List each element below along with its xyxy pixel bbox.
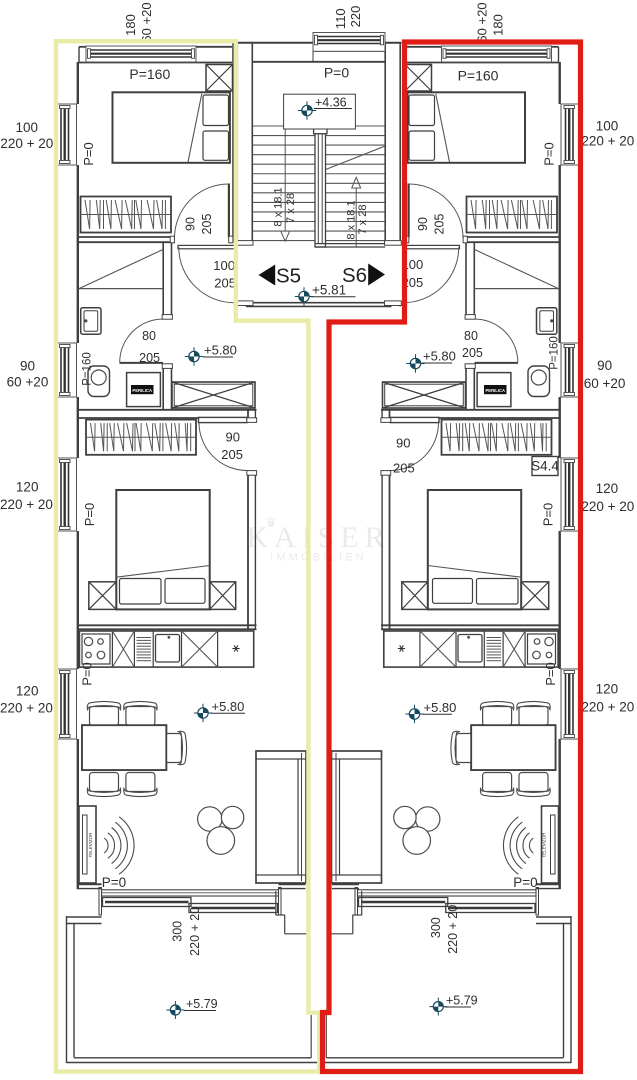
svg-text:90: 90 (416, 217, 430, 231)
svg-text:+5.81: +5.81 (312, 283, 346, 298)
svg-text:P=0: P=0 (543, 662, 558, 686)
svg-text:P=0: P=0 (102, 875, 126, 890)
svg-text:7 x 28: 7 x 28 (357, 205, 369, 235)
svg-text:80: 80 (464, 329, 478, 343)
svg-text:300: 300 (429, 917, 443, 938)
svg-text:90: 90 (20, 358, 35, 373)
svg-text:100: 100 (16, 120, 39, 135)
svg-text:205: 205 (221, 447, 243, 462)
svg-text:PERILICA: PERILICA (132, 388, 152, 393)
svg-text:300: 300 (170, 921, 184, 942)
svg-text:60 +20: 60 +20 (584, 376, 626, 391)
svg-text:TELEVIZOR: TELEVIZOR (88, 832, 93, 858)
svg-text:P=160: P=160 (81, 352, 93, 386)
svg-text:205: 205 (462, 346, 483, 360)
svg-text:+5.80: +5.80 (204, 343, 237, 358)
svg-text:120: 120 (16, 479, 39, 494)
svg-text:220 + 20: 220 + 20 (581, 699, 634, 714)
svg-text:8 x 18.1: 8 x 18.1 (346, 200, 358, 239)
svg-text:90: 90 (226, 430, 240, 445)
svg-text:+5.80: +5.80 (424, 700, 457, 715)
svg-text:S5: S5 (276, 265, 301, 288)
svg-text:♛: ♛ (265, 516, 278, 531)
svg-text:P=0: P=0 (82, 503, 97, 527)
svg-text:+5.79: +5.79 (446, 994, 478, 1008)
svg-text:205: 205 (393, 461, 415, 476)
svg-text:180: 180 (123, 14, 138, 36)
svg-text:205: 205 (139, 351, 160, 365)
svg-text:220 + 20: 220 + 20 (446, 905, 460, 954)
svg-text:90: 90 (396, 436, 410, 451)
svg-text:205: 205 (200, 214, 214, 235)
svg-text:220 + 20: 220 + 20 (0, 136, 53, 151)
svg-text:P=160: P=160 (129, 66, 170, 82)
svg-text:PERILICA: PERILICA (486, 388, 506, 393)
svg-text:8 x 18.1: 8 x 18.1 (273, 187, 285, 226)
svg-text:TELEVIZOR: TELEVIZOR (542, 832, 547, 858)
svg-text:S4.4: S4.4 (531, 459, 559, 474)
svg-text:P=0: P=0 (540, 503, 555, 527)
svg-text:120: 120 (16, 683, 39, 698)
svg-text:205: 205 (433, 214, 447, 235)
svg-text:100: 100 (213, 258, 235, 273)
svg-text:7 x 28: 7 x 28 (285, 193, 297, 223)
svg-text:P=160: P=160 (549, 336, 561, 370)
svg-text:P=0: P=0 (81, 142, 96, 166)
svg-text:220 + 20: 220 + 20 (0, 497, 53, 512)
svg-text:220 + 20: 220 + 20 (188, 907, 202, 956)
svg-text:60 +20: 60 +20 (7, 374, 49, 389)
svg-text:P=0: P=0 (324, 65, 350, 81)
svg-text:60 +20: 60 +20 (475, 2, 490, 42)
svg-text:120: 120 (596, 481, 619, 496)
svg-text:100: 100 (596, 118, 619, 133)
svg-text:+5.80: +5.80 (212, 699, 245, 714)
svg-text:120: 120 (596, 682, 619, 697)
svg-text:180: 180 (491, 14, 506, 36)
svg-text:220: 220 (348, 6, 363, 28)
svg-text:80: 80 (142, 329, 156, 343)
svg-text:220 + 20: 220 + 20 (581, 499, 634, 514)
svg-text:60 +20: 60 +20 (139, 2, 154, 42)
svg-text:+5.79: +5.79 (186, 997, 218, 1011)
svg-text:205: 205 (214, 276, 236, 291)
svg-text:P=0: P=0 (513, 875, 537, 890)
svg-text:P=160: P=160 (458, 68, 499, 84)
svg-text:220 + 20: 220 + 20 (581, 134, 634, 149)
svg-text:220 + 20: 220 + 20 (0, 701, 53, 716)
svg-text:90: 90 (184, 217, 198, 231)
svg-text:110: 110 (333, 8, 348, 29)
svg-text:P=0: P=0 (80, 662, 95, 686)
svg-text:+5.80: +5.80 (423, 349, 456, 364)
svg-text:90: 90 (597, 358, 612, 373)
svg-text:+4.36: +4.36 (315, 96, 347, 110)
svg-text:P=0: P=0 (541, 142, 556, 166)
svg-text:IMMOBILIEN: IMMOBILIEN (270, 552, 367, 564)
